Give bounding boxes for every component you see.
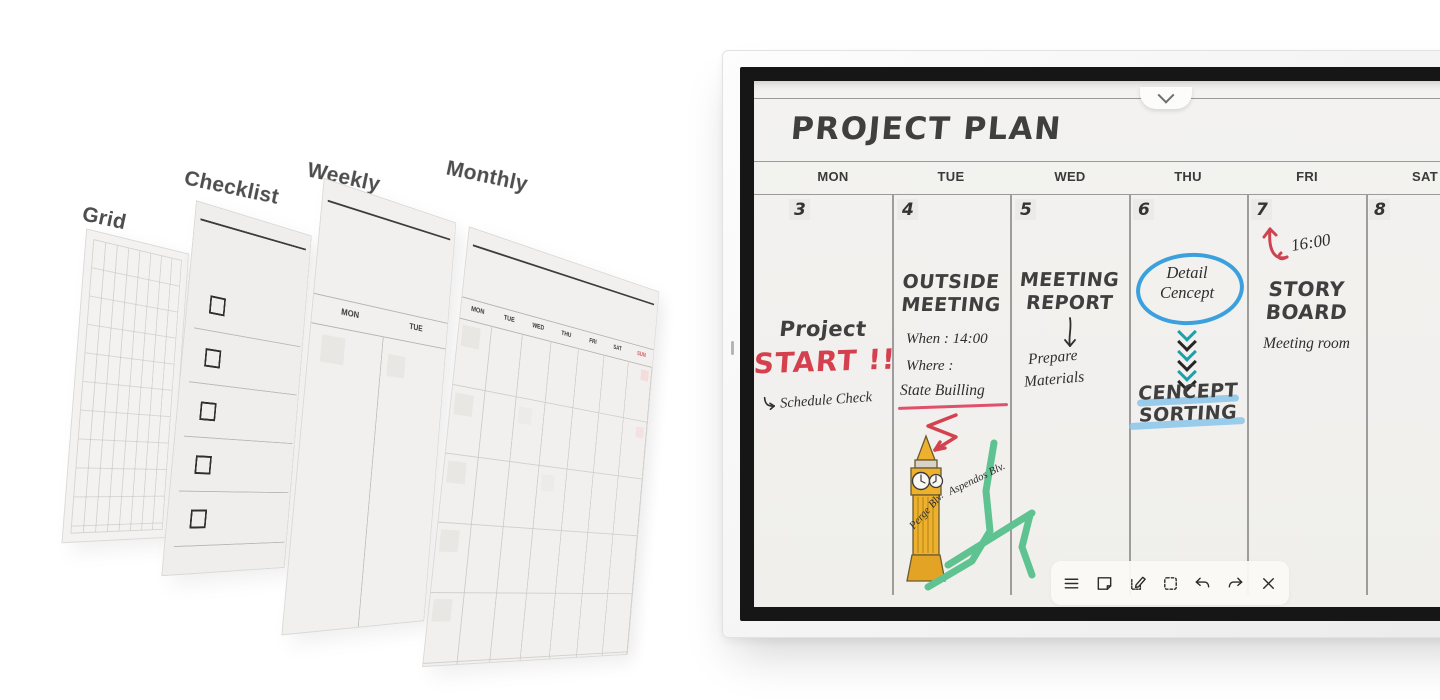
sticky-shadow: [453, 392, 474, 417]
red-underline: [898, 403, 1008, 410]
monthly-day: TUE: [504, 315, 515, 324]
wed-heading2: REPORT: [1009, 292, 1130, 314]
menu-icon[interactable]: [1060, 571, 1084, 595]
month-grid: [423, 318, 652, 666]
whiteboard-toolbar: [1051, 561, 1289, 605]
thu-circled1: Detail: [1137, 263, 1237, 283]
title-rule: [200, 218, 305, 250]
row-divider: [184, 436, 293, 444]
monthly-day: MON: [471, 306, 485, 316]
monthly-day: FRI: [589, 338, 597, 346]
title-rule: [328, 200, 451, 241]
column-mon: Project START !! Schedule Check: [754, 81, 892, 607]
sticky-shadow-red: [640, 369, 648, 381]
fri-note: Meeting room: [1247, 335, 1366, 353]
column-divider: [358, 336, 384, 627]
weekly-day: MON: [341, 307, 360, 321]
tue-when: When : 14:00: [906, 331, 988, 348]
tue-heading2: MEETING: [891, 294, 1011, 316]
sticky-shadow: [446, 460, 467, 484]
page: Grid Checklist Weekly MON TUE: [0, 0, 1440, 700]
tue-location: State Builling: [900, 382, 985, 400]
tue-heading1: OUTSIDE: [891, 271, 1011, 293]
monthly-day-sunday: SUN: [637, 351, 646, 359]
column-fri: 16:00 STORY BOARD Meeting room: [1247, 81, 1366, 607]
flip-display: PROJECT PLAN MON TUE WED THU FRI SAT: [722, 50, 1440, 638]
sticky-shadow: [431, 599, 452, 621]
wed-note1: Prepare: [1027, 347, 1078, 369]
template-board-monthly[interactable]: MON TUE WED THU FRI SAT SUN: [422, 226, 659, 667]
mon-note-text: Schedule Check: [779, 389, 872, 412]
sticky-shadow-red: [635, 426, 644, 438]
mon-note-title2: START !!: [753, 343, 894, 381]
undo-icon[interactable]: [1191, 571, 1215, 595]
column-wed: MEETING REPORT Prepare Materials: [1010, 81, 1129, 607]
edit-note-icon[interactable]: [1125, 571, 1149, 595]
checkbox-icon: [194, 455, 212, 474]
sticky-shadow: [517, 406, 532, 425]
row-divider: [194, 327, 301, 347]
wed-note2: Materials: [1023, 368, 1085, 391]
monthly-day: WED: [532, 322, 544, 331]
header-line: [314, 293, 448, 324]
mon-note-title1: Project: [753, 317, 894, 341]
row-divider: [189, 381, 297, 395]
checkbox-icon: [189, 510, 207, 529]
sticky-shadow: [461, 324, 481, 350]
thu-circled2: Cencept: [1137, 283, 1237, 303]
sticky-shadow: [439, 529, 460, 552]
row-divider: [179, 491, 289, 494]
tue-where: Where :: [906, 358, 953, 375]
red-curved-arrow-icon: [1255, 219, 1293, 263]
sticky-note-icon[interactable]: [1093, 571, 1117, 595]
title-rule: [473, 244, 654, 305]
column-divider: [1366, 195, 1368, 595]
sticky-shadow: [386, 354, 405, 379]
day-header-sat: SAT: [1412, 169, 1438, 184]
sticky-shadow: [320, 334, 346, 365]
monthly-day: THU: [561, 330, 571, 339]
template-label-monthly: Monthly: [444, 157, 530, 198]
grid-pattern: [70, 239, 181, 534]
fri-heading2: BOARD: [1246, 300, 1368, 324]
select-area-icon[interactable]: [1158, 571, 1182, 595]
checkbox-icon: [199, 401, 216, 421]
thu-heading2: SORTING: [1128, 401, 1248, 427]
weekly-day: TUE: [409, 322, 423, 335]
curve-arrow-icon: [762, 396, 779, 413]
whiteboard-screen[interactable]: PROJECT PLAN MON TUE WED THU FRI SAT: [754, 81, 1440, 607]
display-bezel: PROJECT PLAN MON TUE WED THU FRI SAT: [740, 67, 1440, 621]
fri-time: 16:00: [1290, 230, 1332, 256]
column-thu: Detail Cencept CENCEPT SORTING: [1129, 81, 1247, 607]
checkbox-icon: [209, 295, 226, 316]
fri-heading1: STORY: [1246, 277, 1368, 301]
redo-icon[interactable]: [1224, 571, 1248, 595]
wed-heading1: MEETING: [1009, 269, 1130, 291]
sticky-shadow: [541, 474, 555, 492]
close-icon[interactable]: [1256, 571, 1280, 595]
pen-slot: [731, 341, 734, 355]
checkbox-icon: [204, 348, 221, 369]
date-number: 8: [1374, 200, 1386, 220]
monthly-day: SAT: [613, 344, 622, 352]
row-divider: [174, 542, 285, 547]
column-tue: OUTSIDE MEETING When : 14:00 Where : Sta…: [892, 81, 1010, 607]
